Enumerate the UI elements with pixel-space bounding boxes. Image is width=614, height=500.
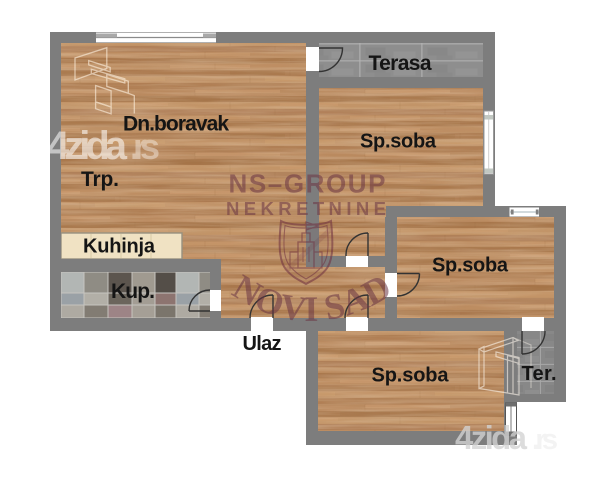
svg-text:NS–GROUP: NS–GROUP [229,169,386,199]
svg-text:.rs: .rs [532,424,558,456]
svg-text:Sp.soba: Sp.soba [372,365,450,387]
svg-text:Ulaz: Ulaz [243,333,282,355]
svg-text:Ter.: Ter. [522,363,557,385]
svg-text:Terasa: Terasa [369,52,432,75]
svg-text:4zida: 4zida [455,419,528,456]
svg-text:Kup.: Kup. [111,280,155,303]
svg-text:Sp.soba: Sp.soba [360,131,437,153]
svg-text:Trp.: Trp. [81,168,119,191]
svg-text:NEKRETNINE: NEKRETNINE [226,198,386,219]
svg-text:Kuhinja: Kuhinja [83,236,156,258]
svg-text:4zida: 4zida [47,124,128,168]
svg-text:.rs: .rs [130,126,160,167]
svg-text:Sp.soba: Sp.soba [432,255,509,277]
